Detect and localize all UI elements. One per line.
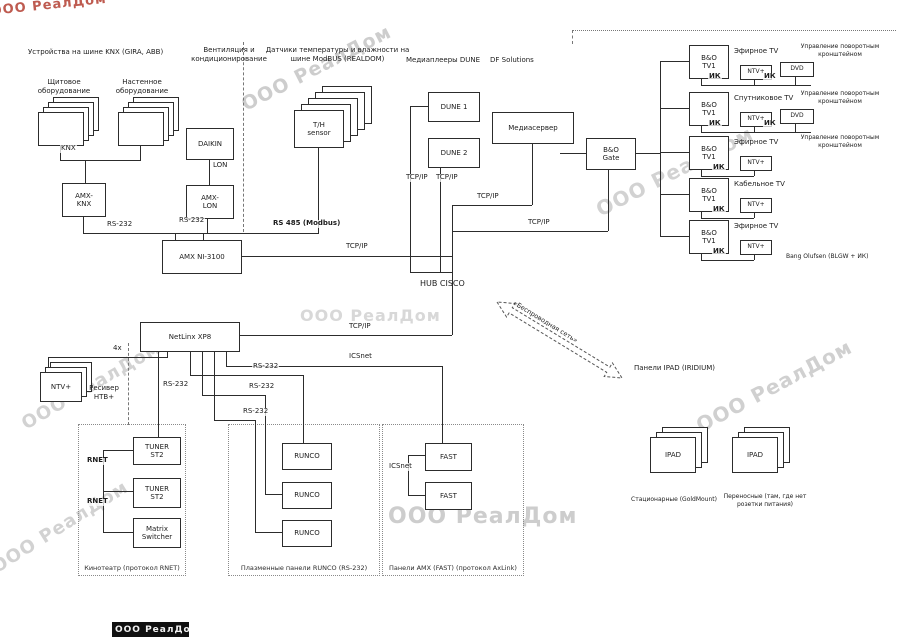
caption-ipad-portable: Переносные (там, где нет розетки питания… <box>722 493 808 508</box>
connector-wire <box>48 357 168 358</box>
dvd-row2: DVD <box>780 109 814 124</box>
caption-shield-equipment: Щитовое оборудование <box>26 78 102 96</box>
amx-knx: AMX- KNX <box>62 183 106 217</box>
wire-label: ИК <box>712 248 726 256</box>
dune-1: DUNE 1 <box>428 92 480 122</box>
fast-1: FAST <box>425 443 472 471</box>
connector-wire <box>255 420 256 532</box>
wire-label: RS-232 <box>252 363 279 371</box>
wire-label: RS-232 <box>242 408 269 416</box>
connector-wire <box>140 144 141 160</box>
wire-label: ИК <box>708 73 722 81</box>
connector-wire <box>660 61 661 236</box>
connector-wire <box>701 132 811 133</box>
caption-ipad-title: Панели IPAD (IRIDIUM) <box>634 364 754 373</box>
caption-ipad-stationary: Стационарные (GoldMount) <box>628 496 720 504</box>
fast-2: FAST <box>425 482 472 510</box>
connector-wire <box>408 455 409 495</box>
connector-wire <box>255 532 282 533</box>
connector-wire <box>190 375 303 376</box>
wire-label: RS-232 <box>106 221 133 229</box>
connector-wire <box>265 494 282 495</box>
section-divider <box>572 30 573 44</box>
matrix-switcher: Matrix Switcher <box>133 518 181 548</box>
runco-2: RUNCO <box>282 482 332 509</box>
bo-gate: B&O Gate <box>586 138 636 170</box>
connector-wire <box>442 366 443 443</box>
wire-label: ИК <box>712 206 726 214</box>
connector-wire <box>440 166 441 272</box>
dune-2: DUNE 2 <box>428 138 480 168</box>
tv2-source: Спутниковое TV <box>734 94 794 103</box>
connector-wire <box>303 375 304 443</box>
watermark: ООО РеалДом <box>692 335 856 438</box>
wire-label: RS-232 <box>178 217 205 225</box>
connector-wire <box>560 153 586 154</box>
amx-ni-3100: AMX NI-3100 <box>162 240 242 274</box>
ipad-stack-portable: IPAD <box>732 437 778 473</box>
tv5-source: Эфирное TV <box>734 222 790 231</box>
wire-label: TCP/IP <box>527 219 551 227</box>
heading-sensors: Датчики температуры и влажности на шине … <box>260 46 415 64</box>
connector-wire <box>214 420 255 421</box>
connector-wire <box>452 231 608 232</box>
connector-wire <box>238 335 452 336</box>
tuner-st2-2: TUNER ST2 <box>133 478 181 508</box>
tv3-note: Управление поворотным кронштейном <box>788 134 892 149</box>
wire-label: RNET <box>86 457 109 465</box>
cinema-zone-caption: Кинотеатр (протокол RNET) <box>81 564 183 572</box>
connector-wire <box>103 532 133 533</box>
heading-knx: Устройства на шине KNX (GIRA, ABB) <box>28 48 198 57</box>
wire-label: ICSnet <box>348 353 373 361</box>
connector-wire <box>410 272 452 273</box>
wire-label: 4x <box>112 345 123 353</box>
connector-wire <box>238 256 453 257</box>
wire-label: TCP/IP <box>345 243 369 251</box>
wire-label: LON <box>212 162 228 170</box>
connector-wire <box>202 350 203 395</box>
wire-label: RS-232 <box>248 383 275 391</box>
wire-label: ИК <box>712 164 726 172</box>
connector-wire <box>214 350 215 420</box>
watermark: ООО РеалДом <box>0 0 107 19</box>
connector-wire <box>701 218 754 219</box>
wire-label: TCP/IP <box>348 323 372 331</box>
section-divider <box>572 30 896 31</box>
tuner-st2-1: TUNER ST2 <box>133 437 181 465</box>
ntv-row4: NTV+ <box>740 198 772 213</box>
runco-3: RUNCO <box>282 520 332 547</box>
wire-label: RS 485 (Modbus) <box>272 220 341 228</box>
connector-wire <box>103 450 133 451</box>
connector-wire <box>410 106 428 107</box>
connector-wire <box>408 455 425 456</box>
th-sensor-stack: T/H sensor <box>294 110 344 148</box>
connector-wire <box>701 176 754 177</box>
media-server: Медиасервер <box>492 112 574 144</box>
ipad-stack-stationary: IPAD <box>650 437 696 473</box>
ntv-row3: NTV+ <box>740 156 772 171</box>
daikin: DAIKIN <box>186 128 234 160</box>
connector-wire <box>85 160 86 183</box>
connector-wire <box>660 61 689 62</box>
connector-wire <box>660 108 689 109</box>
wire-label: TCP/IP <box>405 174 429 182</box>
connector-wire <box>207 217 208 233</box>
netlinx-xp8: NetLinx XP8 <box>140 322 240 352</box>
connector-wire <box>660 152 689 153</box>
section-divider <box>243 42 244 232</box>
connector-wire <box>608 168 609 231</box>
diagram-canvas: ООО РеалДомООО РеалДомООО РеалДомООО Реа… <box>0 0 900 637</box>
connector-wire <box>209 158 210 185</box>
connector-wire <box>83 215 84 233</box>
wire-label: KNX <box>60 145 77 153</box>
ntv-row5: NTV+ <box>740 240 772 255</box>
footer-watermark-bar: ООО РеалДом <box>112 622 189 637</box>
caption-wall-equipment: Настенное оборудование <box>104 78 180 96</box>
heading-df-solutions: DF Solutions <box>490 56 560 65</box>
connector-wire <box>701 85 811 86</box>
connector-wire <box>202 395 265 396</box>
connector-wire <box>452 205 453 335</box>
runco-1: RUNCO <box>282 443 332 470</box>
wire-label: ICSnet <box>388 463 413 471</box>
caption-ntv-receiver: Ресивер НТВ+ <box>76 384 132 402</box>
tv1-source: Эфирное TV <box>734 47 790 56</box>
fast-zone-caption: Панели AMX (FAST) (протокол AxLink) <box>385 564 521 572</box>
tv3-source: Эфирное TV <box>734 138 790 147</box>
watermark: ООО РеалДом <box>592 121 757 221</box>
heading-dune: Медиаплееры DUNE <box>406 56 501 65</box>
connector-wire <box>190 350 191 375</box>
connector-wire <box>408 495 425 496</box>
connector-wire <box>203 233 204 240</box>
wire-label: ИК <box>763 120 777 128</box>
connector-wire <box>175 233 176 240</box>
connector-wire <box>634 153 660 154</box>
runco-zone-caption: Плазменные панели RUNCO (RS-232) <box>231 564 377 572</box>
connector-wire <box>103 491 133 492</box>
connector-wire <box>532 142 533 205</box>
connector-wire <box>660 236 689 237</box>
bo-protocol-note: Bang Olufsen (BLGW + ИК) <box>786 253 898 261</box>
wire-label: ИК <box>763 73 777 81</box>
wire-label: RNET <box>86 498 109 506</box>
amx-lon: AMX- LON <box>186 185 234 219</box>
wire-label: TCP/IP <box>476 193 500 201</box>
connector-wire <box>226 350 227 366</box>
tv4-source: Кабельное TV <box>734 180 794 189</box>
connector-wire <box>701 260 754 261</box>
knx-stack-wall <box>118 112 164 146</box>
wireless-arrow <box>482 290 652 400</box>
connector-wire <box>60 160 141 161</box>
connector-wire <box>410 106 411 272</box>
connector-wire <box>83 233 319 234</box>
tv1-note: Управление поворотным кронштейном <box>788 43 892 58</box>
wire-label: RS-232 <box>162 381 189 389</box>
tv2-note: Управление поворотным кронштейном <box>788 90 892 105</box>
wire-label: TCP/IP <box>435 174 459 182</box>
dvd-row1: DVD <box>780 62 814 77</box>
connector-wire <box>158 350 159 437</box>
connector-wire <box>660 194 689 195</box>
wire-label: ИК <box>708 120 722 128</box>
knx-stack-shield <box>38 112 84 146</box>
connector-wire <box>452 205 532 206</box>
hub-cisco-label: HUB CISCO <box>420 279 490 289</box>
